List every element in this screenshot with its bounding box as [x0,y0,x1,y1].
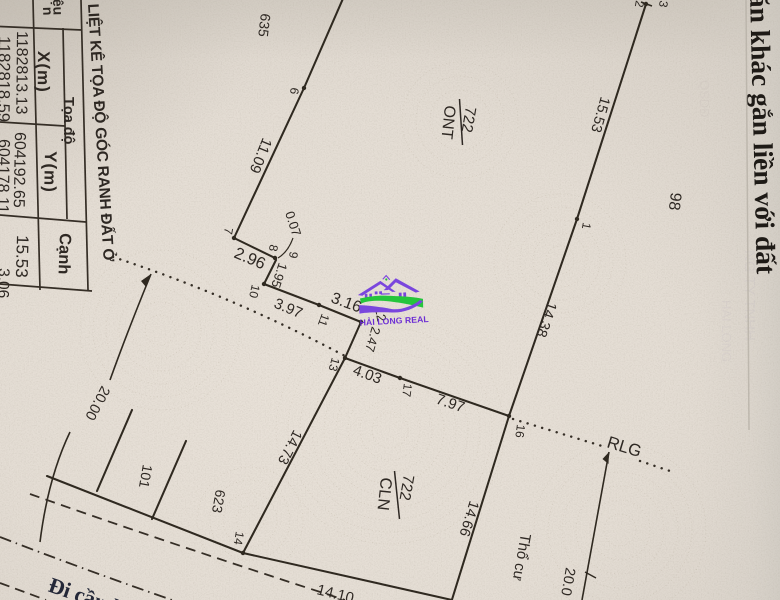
svg-text:HAI LONG: HAI LONG [719,300,734,362]
svg-text:CLN: CLN [374,477,395,512]
svg-text:Y(m): Y(m) [40,151,60,193]
svg-text:Cạnh: Cạnh [55,233,74,275]
svg-text:X(m): X(m) [34,51,53,93]
svg-text:16: 16 [512,424,528,439]
svg-text:14: 14 [231,530,247,546]
svg-text:1182813.13: 1182813.13 [12,31,30,115]
svg-text:QSDĐ: QSDĐ [697,80,712,118]
svg-text:NG TY TNHH: NG TY TNHH [741,250,758,341]
svg-text:17: 17 [399,383,415,398]
svg-text:604178.11: 604178.11 [0,139,12,214]
svg-text:ONT: ONT [437,105,457,141]
svg-text:Tọa độ: Tọa độ [60,97,76,145]
svg-text:98: 98 [665,192,684,212]
svg-text:15.53: 15.53 [12,235,32,278]
svg-text:n: n [40,7,56,16]
svg-text:1182818.59: 1182818.59 [0,36,13,122]
svg-text:635: 635 [255,13,274,38]
svg-text:3.06: 3.06 [0,268,12,299]
